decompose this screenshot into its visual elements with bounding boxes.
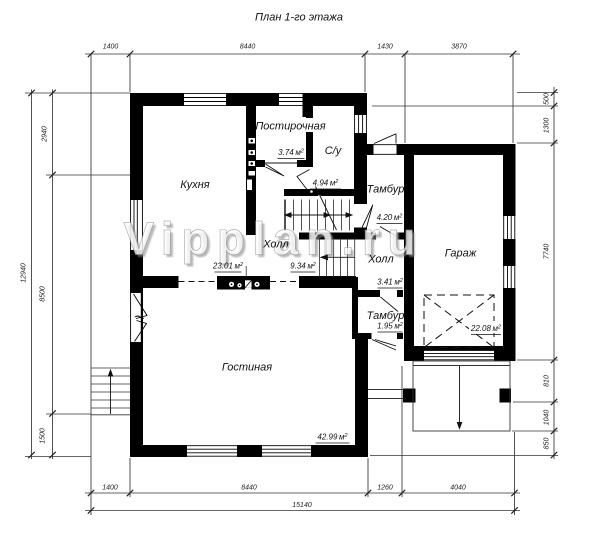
svg-text:42.99 м2: 42.99 м2	[317, 433, 347, 442]
svg-text:Постирочная: Постирочная	[255, 121, 325, 133]
svg-text:500: 500	[544, 93, 551, 105]
svg-text:2940: 2940	[42, 126, 49, 143]
svg-text:Гараж: Гараж	[445, 248, 477, 260]
svg-text:9.34 м2: 9.34 м2	[290, 262, 316, 271]
svg-text:12940: 12940	[21, 263, 28, 283]
svg-text:План 1-го этажа: План 1-го этажа	[255, 12, 343, 24]
svg-text:1.95 м2: 1.95 м2	[377, 322, 403, 331]
svg-text:8500: 8500	[40, 286, 47, 302]
svg-text:4040: 4040	[450, 485, 466, 492]
svg-text:1040: 1040	[544, 410, 551, 426]
svg-text:7740: 7740	[544, 244, 551, 260]
svg-text:15140: 15140	[292, 502, 312, 509]
svg-text:Холл: Холл	[262, 239, 288, 251]
svg-text:22.08 м2: 22.08 м2	[470, 324, 501, 333]
svg-text:С/у: С/у	[325, 145, 343, 157]
svg-text:Тамбур: Тамбур	[367, 310, 405, 322]
svg-text:3.74 м2: 3.74 м2	[278, 148, 304, 157]
svg-text:8440: 8440	[241, 485, 257, 492]
svg-text:Кухня: Кухня	[180, 179, 209, 191]
svg-text:1300: 1300	[544, 118, 551, 134]
svg-text:810: 810	[544, 375, 551, 387]
svg-text:1400: 1400	[102, 485, 118, 492]
svg-text:4.94 м2: 4.94 м2	[313, 179, 339, 188]
svg-text:1400: 1400	[103, 44, 119, 51]
svg-text:Тамбур: Тамбур	[367, 184, 405, 196]
svg-text:1500: 1500	[40, 428, 47, 444]
svg-text:3870: 3870	[451, 44, 467, 51]
svg-text:8440: 8440	[240, 44, 256, 51]
svg-text:3.41 м2: 3.41 м2	[377, 278, 403, 287]
svg-text:1260: 1260	[377, 485, 393, 492]
svg-text:23.01 м2: 23.01 м2	[212, 262, 243, 271]
svg-text:Холл: Холл	[367, 254, 393, 266]
svg-text:1430: 1430	[377, 44, 393, 51]
svg-text:4.20 м2: 4.20 м2	[377, 213, 403, 222]
svg-text:850: 850	[544, 438, 551, 450]
svg-text:Гостиная: Гостиная	[222, 362, 272, 374]
